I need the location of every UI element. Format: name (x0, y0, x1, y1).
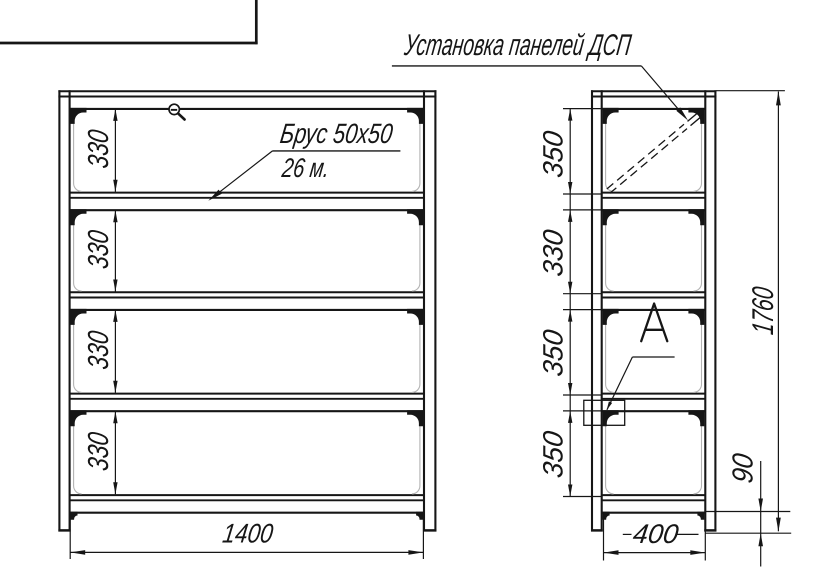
svg-text:350: 350 (538, 129, 569, 180)
svg-text:330: 330 (83, 228, 115, 270)
svg-text:1760: 1760 (747, 285, 780, 337)
svg-text:330: 330 (83, 329, 115, 371)
svg-text:Брус 50x50: Брус 50x50 (278, 118, 395, 149)
svg-text:350: 350 (538, 429, 569, 480)
svg-text:1400: 1400 (221, 518, 275, 549)
svg-text:330: 330 (83, 128, 115, 170)
svg-text:400: 400 (631, 518, 680, 549)
svg-text:330: 330 (538, 227, 569, 278)
svg-text:350: 350 (538, 327, 569, 378)
svg-text:Установка панелей ДСП: Установка панелей ДСП (402, 29, 633, 62)
svg-text:90: 90 (728, 452, 760, 485)
svg-text:330: 330 (83, 430, 115, 472)
svg-text:26 м.: 26 м. (280, 152, 332, 183)
